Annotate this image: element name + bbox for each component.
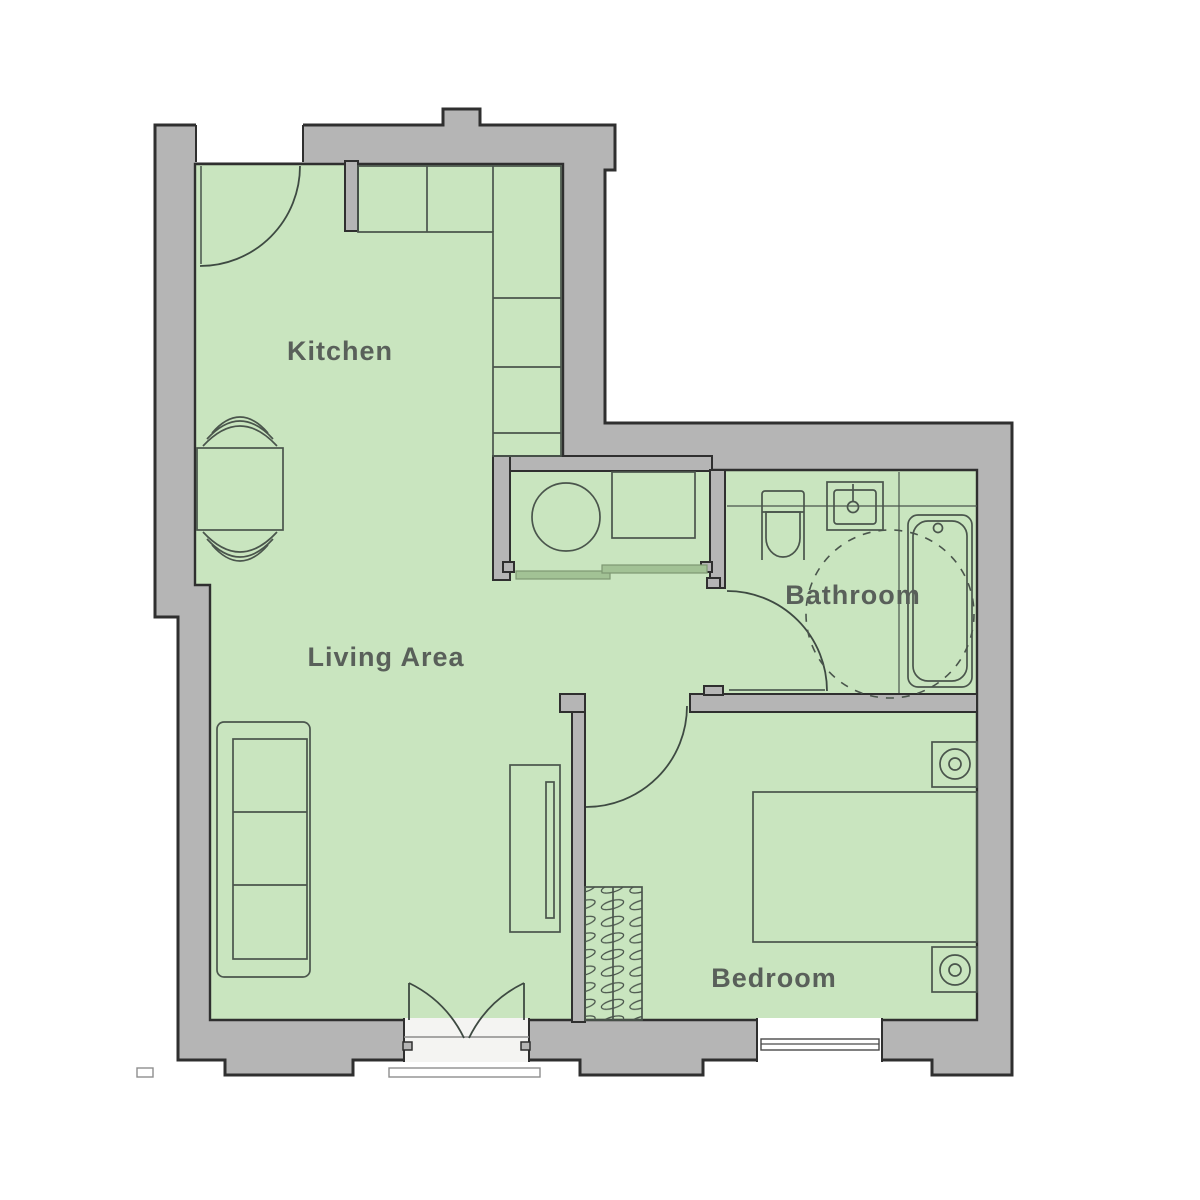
dining-table xyxy=(197,448,283,530)
door-stop-notch xyxy=(707,578,720,588)
bedroom-window xyxy=(757,1018,882,1062)
kitchen-wall-stub xyxy=(345,161,358,231)
door-stop-notch xyxy=(704,686,723,695)
kitchen-label: Kitchen xyxy=(287,336,393,366)
wardrobe xyxy=(585,887,642,1020)
bedroom-door-jamb-block xyxy=(560,694,585,712)
bathroom-label: Bathroom xyxy=(785,580,921,610)
floor-plan-page: Kitchen Living Area Bathroom Bedroom xyxy=(0,0,1200,1200)
door-stop-notch xyxy=(503,562,514,572)
closet-top-wall xyxy=(493,456,712,471)
bedroom-label: Bedroom xyxy=(711,963,837,993)
living-area-label: Living Area xyxy=(307,642,464,672)
bedroom-west-wall xyxy=(572,704,585,1022)
bathroom-south-wall xyxy=(690,694,977,712)
threshold-step-fragment xyxy=(137,1068,153,1077)
floor-plan: Kitchen Living Area Bathroom Bedroom xyxy=(0,0,1200,1200)
entrance-opening xyxy=(196,112,303,162)
threshold-step xyxy=(389,1068,540,1077)
